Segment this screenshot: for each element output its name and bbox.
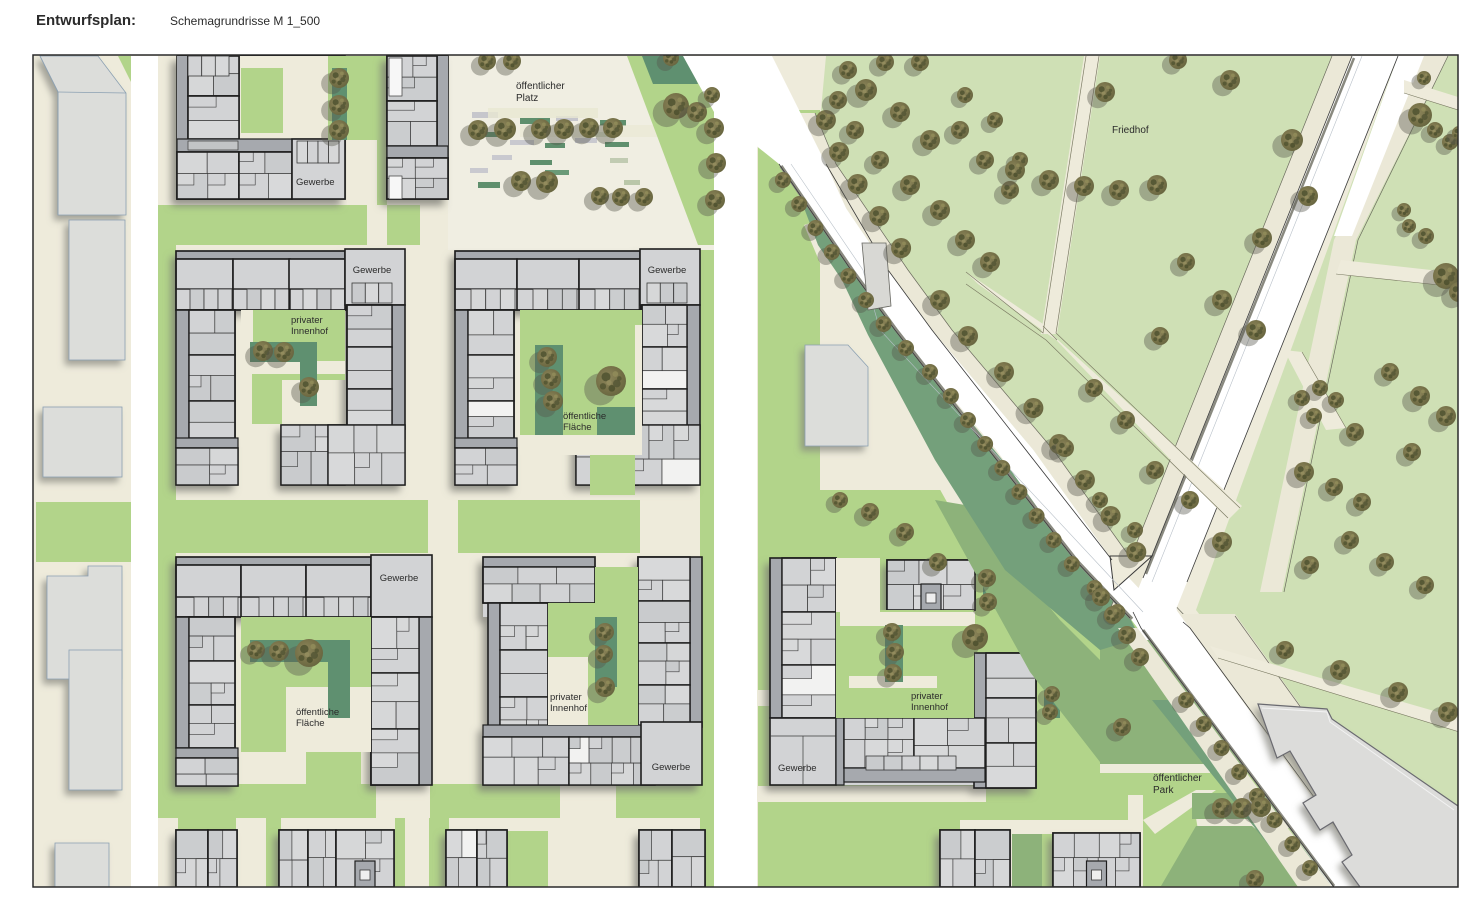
svg-text:öffentlicher: öffentlicher	[516, 81, 565, 92]
svg-text:Innenhof: Innenhof	[291, 326, 328, 337]
svg-text:Gewerbe: Gewerbe	[648, 265, 687, 276]
svg-text:öffentliche: öffentliche	[563, 411, 606, 422]
svg-text:Entwurfsplan:: Entwurfsplan:	[36, 12, 136, 29]
svg-text:Schemagrundrisse M 1_500: Schemagrundrisse M 1_500	[170, 14, 320, 28]
svg-text:öffentliche: öffentliche	[296, 707, 339, 718]
svg-text:Fläche: Fläche	[296, 718, 325, 729]
svg-text:privater: privater	[911, 691, 943, 702]
svg-text:öffentlicher: öffentlicher	[1153, 773, 1202, 784]
svg-text:Gewerbe: Gewerbe	[652, 762, 691, 773]
svg-text:Innenhof: Innenhof	[911, 702, 948, 713]
svg-text:Gewerbe: Gewerbe	[778, 763, 817, 774]
svg-text:Innenhof: Innenhof	[550, 703, 587, 714]
svg-text:Gewerbe: Gewerbe	[353, 265, 392, 276]
svg-text:Park: Park	[1153, 785, 1175, 796]
svg-text:privater: privater	[550, 692, 582, 703]
svg-text:Gewerbe: Gewerbe	[296, 177, 335, 188]
svg-text:Friedhof: Friedhof	[1112, 125, 1149, 136]
svg-text:Fläche: Fläche	[563, 422, 592, 433]
svg-text:privater: privater	[291, 315, 323, 326]
svg-text:Platz: Platz	[516, 93, 538, 104]
svg-text:Gewerbe: Gewerbe	[380, 573, 419, 584]
